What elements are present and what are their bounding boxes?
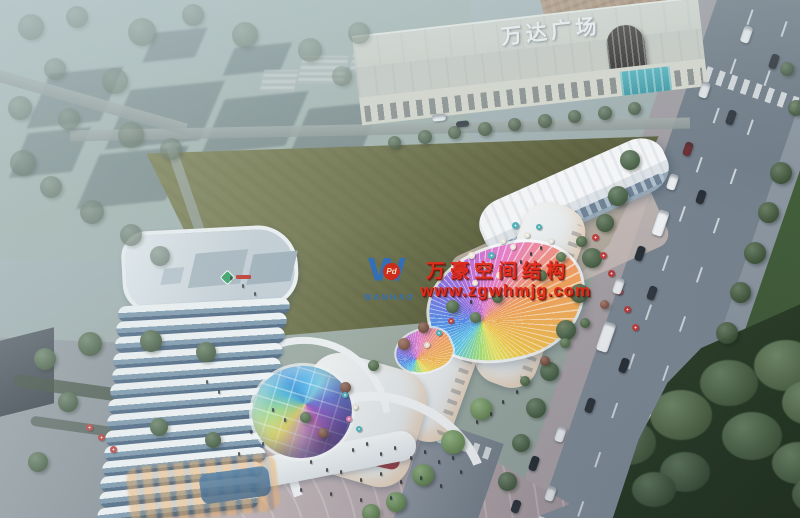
tree-icon <box>596 214 614 232</box>
tree-icon <box>388 136 401 149</box>
umbrella-icon <box>500 238 506 244</box>
tower-roof-logo-text <box>236 275 251 279</box>
tree-icon <box>66 6 88 28</box>
park-tree-cluster <box>700 360 758 406</box>
person-dot <box>242 284 244 288</box>
tree-icon <box>580 318 590 328</box>
umbrella-icon <box>424 342 430 348</box>
person-dot <box>390 496 392 500</box>
watermark-logo-badge: Pd <box>383 263 400 280</box>
umbrella-icon <box>342 392 348 398</box>
dark-corner-building <box>0 327 54 416</box>
tree-icon <box>470 398 492 420</box>
person-dot <box>452 456 454 460</box>
person-dot <box>284 418 286 422</box>
umbrella-icon <box>592 234 599 241</box>
umbrella-icon <box>524 232 530 238</box>
person-dot <box>460 470 462 474</box>
tree-icon <box>418 130 432 144</box>
tree-icon <box>526 398 546 418</box>
tree-icon <box>40 176 62 198</box>
person-dot <box>238 452 240 456</box>
tree-icon <box>520 376 530 386</box>
umbrella-icon <box>110 446 117 453</box>
person-dot <box>394 446 396 450</box>
tree-icon <box>362 504 380 518</box>
person-dot <box>360 498 362 502</box>
person-dot <box>272 408 274 412</box>
person-dot <box>516 390 518 394</box>
tree-icon <box>508 118 521 131</box>
umbrella-icon <box>448 318 454 324</box>
person-dot <box>420 476 422 480</box>
tree-icon <box>58 108 80 130</box>
tree-icon <box>8 96 32 120</box>
person-dot <box>310 460 312 464</box>
umbrella-icon <box>510 244 516 250</box>
person-dot <box>326 468 328 472</box>
tree-icon <box>118 122 144 148</box>
person-dot <box>218 390 220 394</box>
person-dot <box>440 484 442 488</box>
tree-icon <box>788 100 800 116</box>
tree-icon <box>18 14 44 40</box>
umbrella-icon <box>352 404 358 410</box>
umbrella-icon <box>624 306 631 313</box>
tree-icon <box>182 4 204 26</box>
umbrella-icon <box>86 424 93 431</box>
park-tree-cluster <box>632 472 676 507</box>
umbrella-icon <box>98 434 105 441</box>
person-dot <box>254 292 256 296</box>
tree-icon <box>44 58 66 80</box>
rooftop-unit <box>246 251 297 285</box>
tree-icon <box>128 18 156 46</box>
person-dot <box>410 456 412 460</box>
person-dot <box>400 480 402 484</box>
tree-icon <box>560 338 570 348</box>
person-dot <box>438 460 440 464</box>
tree-icon <box>318 428 328 438</box>
person-dot <box>490 412 492 416</box>
tree-icon <box>418 322 429 333</box>
tree-icon <box>140 330 162 352</box>
person-dot <box>206 380 208 384</box>
tree-icon <box>102 68 128 94</box>
tree-icon <box>512 434 530 452</box>
person-dot <box>424 450 426 454</box>
person-dot <box>540 246 542 250</box>
tree-icon <box>576 236 587 247</box>
tree-icon <box>28 452 48 472</box>
tree-icon <box>598 106 612 120</box>
tree-icon <box>780 62 794 76</box>
rooftop-unit <box>188 249 248 288</box>
tree-icon <box>448 126 461 139</box>
person-dot <box>380 472 382 476</box>
tree-icon <box>80 200 104 224</box>
person-dot <box>476 420 478 424</box>
tree-icon <box>758 202 779 223</box>
tree-icon <box>556 320 576 340</box>
hazy-building <box>260 70 299 92</box>
person-dot <box>230 276 232 280</box>
tree-icon <box>298 38 322 62</box>
tree-icon <box>232 22 258 48</box>
tree-icon <box>160 138 182 160</box>
watermark-company: 万豪空间结构 <box>426 256 570 283</box>
tree-icon <box>150 418 168 436</box>
watermark: W Pd WANHAO 万豪空间结构 www.zgwhmjg.com <box>362 252 612 318</box>
aerial-architectural-rendering: 万达广场 <box>0 0 800 518</box>
tree-icon <box>348 22 370 44</box>
person-dot <box>330 492 332 496</box>
rooftop-unit <box>160 267 184 285</box>
tree-icon <box>10 150 36 176</box>
person-dot <box>360 478 362 482</box>
tree-icon <box>412 464 434 486</box>
tree-icon <box>150 246 170 266</box>
tree-icon <box>120 224 142 246</box>
person-dot <box>366 442 368 446</box>
tree-icon <box>478 122 492 136</box>
tree-icon <box>770 162 792 184</box>
person-dot <box>340 470 342 474</box>
tree-icon <box>78 332 102 356</box>
watermark-brand: WANHAO <box>364 293 415 302</box>
tree-icon <box>730 282 751 303</box>
tree-icon <box>398 338 410 350</box>
tree-icon <box>386 492 406 512</box>
tree-icon <box>540 356 550 366</box>
person-dot <box>262 442 264 446</box>
tree-icon <box>568 110 581 123</box>
tree-icon <box>300 412 311 423</box>
tree-icon <box>744 242 766 264</box>
umbrella-icon <box>548 238 554 244</box>
umbrella-icon <box>356 426 362 432</box>
person-dot <box>300 488 302 492</box>
tree-icon <box>498 472 517 491</box>
tree-icon <box>620 150 640 170</box>
tree-icon <box>196 342 216 362</box>
umbrella-icon <box>346 416 352 422</box>
tree-icon <box>716 322 738 344</box>
tree-icon <box>538 114 552 128</box>
person-dot <box>380 452 382 456</box>
person-dot <box>352 448 354 452</box>
tree-icon <box>58 392 78 412</box>
tree-icon <box>205 432 221 448</box>
umbrella-icon <box>536 224 542 230</box>
person-dot <box>250 430 252 434</box>
mall-teal-storefront <box>620 66 672 96</box>
tree-icon <box>332 66 352 86</box>
umbrella-icon <box>512 222 519 229</box>
tree-icon <box>34 348 56 370</box>
tree-icon <box>628 102 641 115</box>
park-tree-cluster <box>722 412 782 460</box>
tree-icon <box>608 186 628 206</box>
umbrella-icon <box>436 330 442 336</box>
tree-icon <box>441 430 465 454</box>
umbrella-icon <box>632 324 639 331</box>
watermark-website: www.zgwhmjg.com <box>420 281 591 301</box>
person-dot <box>502 400 504 404</box>
tree-icon <box>368 360 379 371</box>
